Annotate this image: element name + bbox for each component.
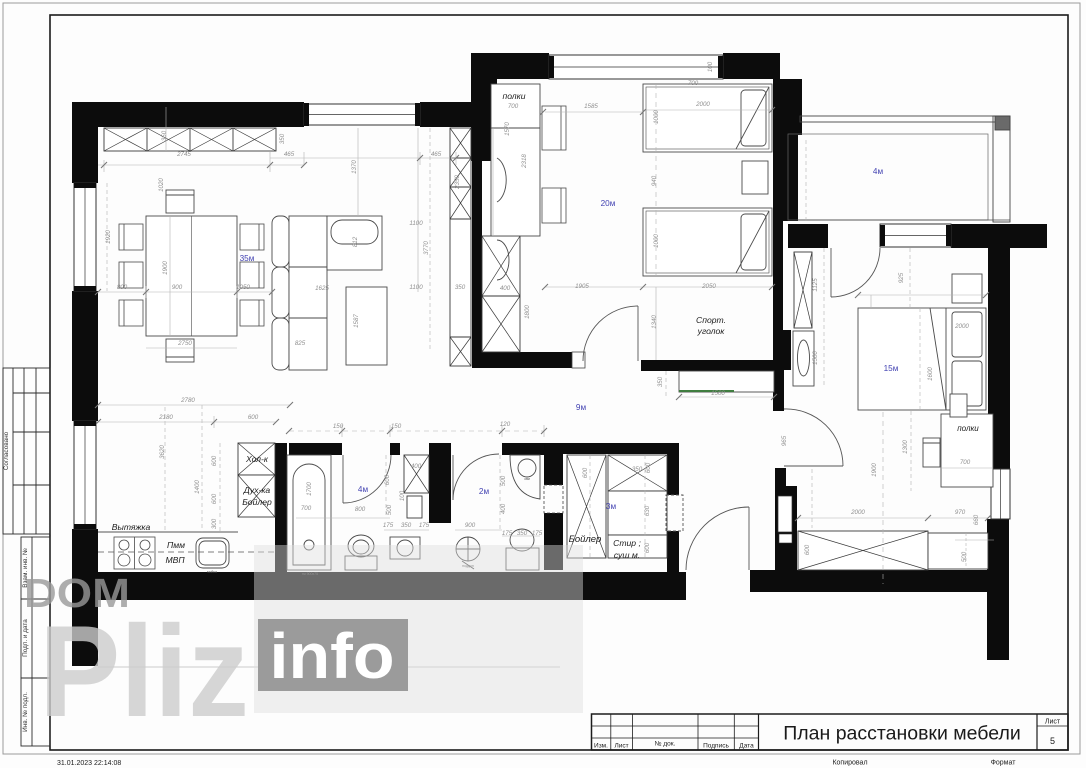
svg-text:2350: 2350 [454, 175, 461, 190]
svg-text:700: 700 [960, 459, 971, 466]
svg-text:Стир ;: Стир ; [613, 538, 641, 548]
svg-text:350: 350 [279, 133, 286, 144]
svg-text:2180: 2180 [158, 414, 173, 421]
svg-text:3620: 3620 [159, 445, 166, 459]
svg-text:1300: 1300 [902, 440, 909, 454]
svg-text:350: 350 [455, 284, 466, 291]
svg-text:900: 900 [465, 522, 476, 529]
svg-text:1020: 1020 [158, 178, 165, 192]
svg-text:Пмм: Пмм [167, 540, 185, 550]
svg-text:400: 400 [500, 503, 507, 514]
svg-text:120: 120 [500, 421, 511, 428]
svg-text:1625: 1625 [315, 285, 329, 292]
svg-text:4м: 4м [873, 167, 884, 176]
svg-text:600: 600 [644, 542, 651, 553]
svg-text:1905: 1905 [575, 283, 589, 290]
svg-text:1900: 1900 [162, 261, 169, 275]
svg-text:Формат: Формат [991, 760, 1017, 767]
svg-text:Изм.: Изм. [594, 743, 608, 750]
svg-text:Инв. № подл.: Инв. № подл. [22, 692, 29, 732]
svg-text:825: 825 [295, 340, 306, 347]
svg-text:1600: 1600 [927, 367, 934, 381]
svg-text:1500: 1500 [812, 351, 819, 365]
svg-text:суш м.: суш м. [614, 550, 640, 560]
svg-text:350: 350 [657, 376, 664, 387]
svg-text:925: 925 [898, 272, 905, 283]
svg-text:700: 700 [508, 103, 519, 110]
svg-text:мойка: мойка [207, 570, 217, 574]
svg-text:Спорт.: Спорт. [696, 315, 726, 325]
svg-text:350: 350 [517, 530, 528, 537]
svg-text:9м: 9м [576, 403, 587, 412]
svg-text:Подпись: Подпись [703, 743, 729, 750]
svg-text:Лист: Лист [1045, 719, 1061, 726]
svg-text:35м: 35м [240, 254, 255, 263]
svg-text:175: 175 [419, 522, 430, 529]
svg-text:1000: 1000 [653, 110, 660, 124]
svg-text:1340: 1340 [651, 315, 658, 329]
svg-text:1000: 1000 [653, 234, 660, 248]
svg-text:1587: 1587 [353, 314, 360, 328]
svg-text:350: 350 [161, 130, 168, 141]
svg-text:Дата: Дата [739, 743, 754, 750]
svg-text:300: 300 [211, 518, 218, 529]
svg-text:600: 600 [645, 462, 652, 473]
svg-text:Подп. и дата: Подп. и дата [22, 619, 29, 657]
svg-text:полки: полки [502, 91, 525, 101]
svg-text:3770: 3770 [423, 241, 430, 255]
svg-text:1700: 1700 [306, 482, 313, 496]
svg-text:350: 350 [401, 522, 412, 529]
svg-text:965: 965 [781, 435, 788, 446]
svg-text:500: 500 [961, 551, 968, 562]
svg-text:600: 600 [248, 414, 259, 421]
svg-text:600: 600 [582, 467, 589, 478]
svg-text:овм: овм [524, 477, 530, 481]
svg-text:1920: 1920 [105, 230, 112, 244]
svg-text:Pliz: Pliz [39, 598, 249, 744]
svg-text:уголок: уголок [697, 326, 726, 336]
svg-text:175: 175 [532, 530, 543, 537]
svg-text:800: 800 [117, 284, 128, 291]
svg-text:4м: 4м [358, 485, 369, 494]
svg-text:150: 150 [391, 423, 402, 430]
svg-text:info: info [270, 620, 395, 692]
svg-text:900: 900 [172, 284, 183, 291]
svg-text:100: 100 [399, 490, 406, 501]
svg-text:Вытяжка: Вытяжка [112, 522, 151, 532]
svg-text:Лист: Лист [614, 743, 628, 750]
svg-text:700: 700 [688, 80, 699, 87]
svg-text:№ док.: № док. [655, 741, 676, 748]
svg-text:2318: 2318 [521, 154, 528, 169]
svg-text:План расстановки мебели: План расстановки мебели [783, 723, 1020, 745]
svg-text:465: 465 [431, 151, 442, 158]
svg-text:1570: 1570 [504, 122, 511, 136]
svg-text:2050: 2050 [701, 283, 716, 290]
svg-text:700: 700 [301, 505, 312, 512]
svg-text:465: 465 [284, 151, 295, 158]
svg-text:2000: 2000 [954, 323, 969, 330]
svg-text:600: 600 [211, 493, 218, 504]
svg-text:500: 500 [500, 475, 507, 486]
svg-text:812: 812 [352, 236, 359, 247]
svg-text:Бойлер: Бойлер [569, 534, 602, 545]
svg-text:2780: 2780 [180, 397, 195, 404]
svg-text:1400: 1400 [194, 480, 201, 494]
svg-text:Бойлер: Бойлер [242, 497, 272, 507]
svg-text:600: 600 [384, 474, 391, 485]
svg-text:2750: 2750 [177, 340, 192, 347]
svg-text:400: 400 [500, 285, 511, 292]
svg-text:660: 660 [973, 514, 980, 525]
svg-text:Дух-ка: Дух-ка [243, 485, 271, 495]
svg-text:600: 600 [804, 544, 811, 555]
svg-text:2000: 2000 [850, 509, 865, 516]
svg-text:350: 350 [632, 466, 643, 473]
svg-text:Хол-к: Хол-к [245, 454, 269, 464]
svg-text:3м: 3м [606, 502, 617, 511]
svg-text:175: 175 [383, 522, 394, 529]
svg-text:940: 940 [651, 175, 658, 186]
svg-text:1500: 1500 [711, 390, 725, 397]
svg-text:1585: 1585 [584, 103, 598, 110]
svg-text:100: 100 [707, 61, 714, 72]
svg-text:2000: 2000 [695, 101, 710, 108]
svg-text:1100: 1100 [409, 284, 423, 291]
svg-text:1125: 1125 [812, 278, 819, 292]
svg-text:150: 150 [333, 423, 344, 430]
svg-text:630: 630 [644, 505, 651, 516]
svg-text:600: 600 [211, 455, 218, 466]
svg-text:5: 5 [1050, 736, 1055, 746]
svg-text:Согласовано: Согласовано [3, 431, 10, 470]
svg-text:1370: 1370 [351, 160, 358, 174]
svg-text:2745: 2745 [176, 151, 191, 158]
svg-text:800: 800 [355, 506, 366, 513]
svg-text:1900: 1900 [871, 463, 878, 477]
svg-text:15м: 15м [884, 364, 899, 373]
svg-text:полки: полки [957, 424, 979, 433]
svg-text:500: 500 [386, 504, 393, 515]
svg-text:1800: 1800 [524, 305, 531, 319]
svg-text:175: 175 [502, 530, 513, 537]
svg-text:2м: 2м [479, 487, 490, 496]
svg-text:31.01.2023 22:14:08: 31.01.2023 22:14:08 [57, 760, 121, 767]
svg-text:400: 400 [411, 463, 422, 470]
svg-text:20м: 20м [601, 199, 616, 208]
svg-text:1100: 1100 [409, 220, 423, 227]
svg-text:Копировал: Копировал [832, 760, 867, 767]
svg-text:1050: 1050 [236, 284, 250, 291]
svg-text:МВП: МВП [165, 555, 185, 565]
svg-text:970: 970 [955, 509, 966, 516]
